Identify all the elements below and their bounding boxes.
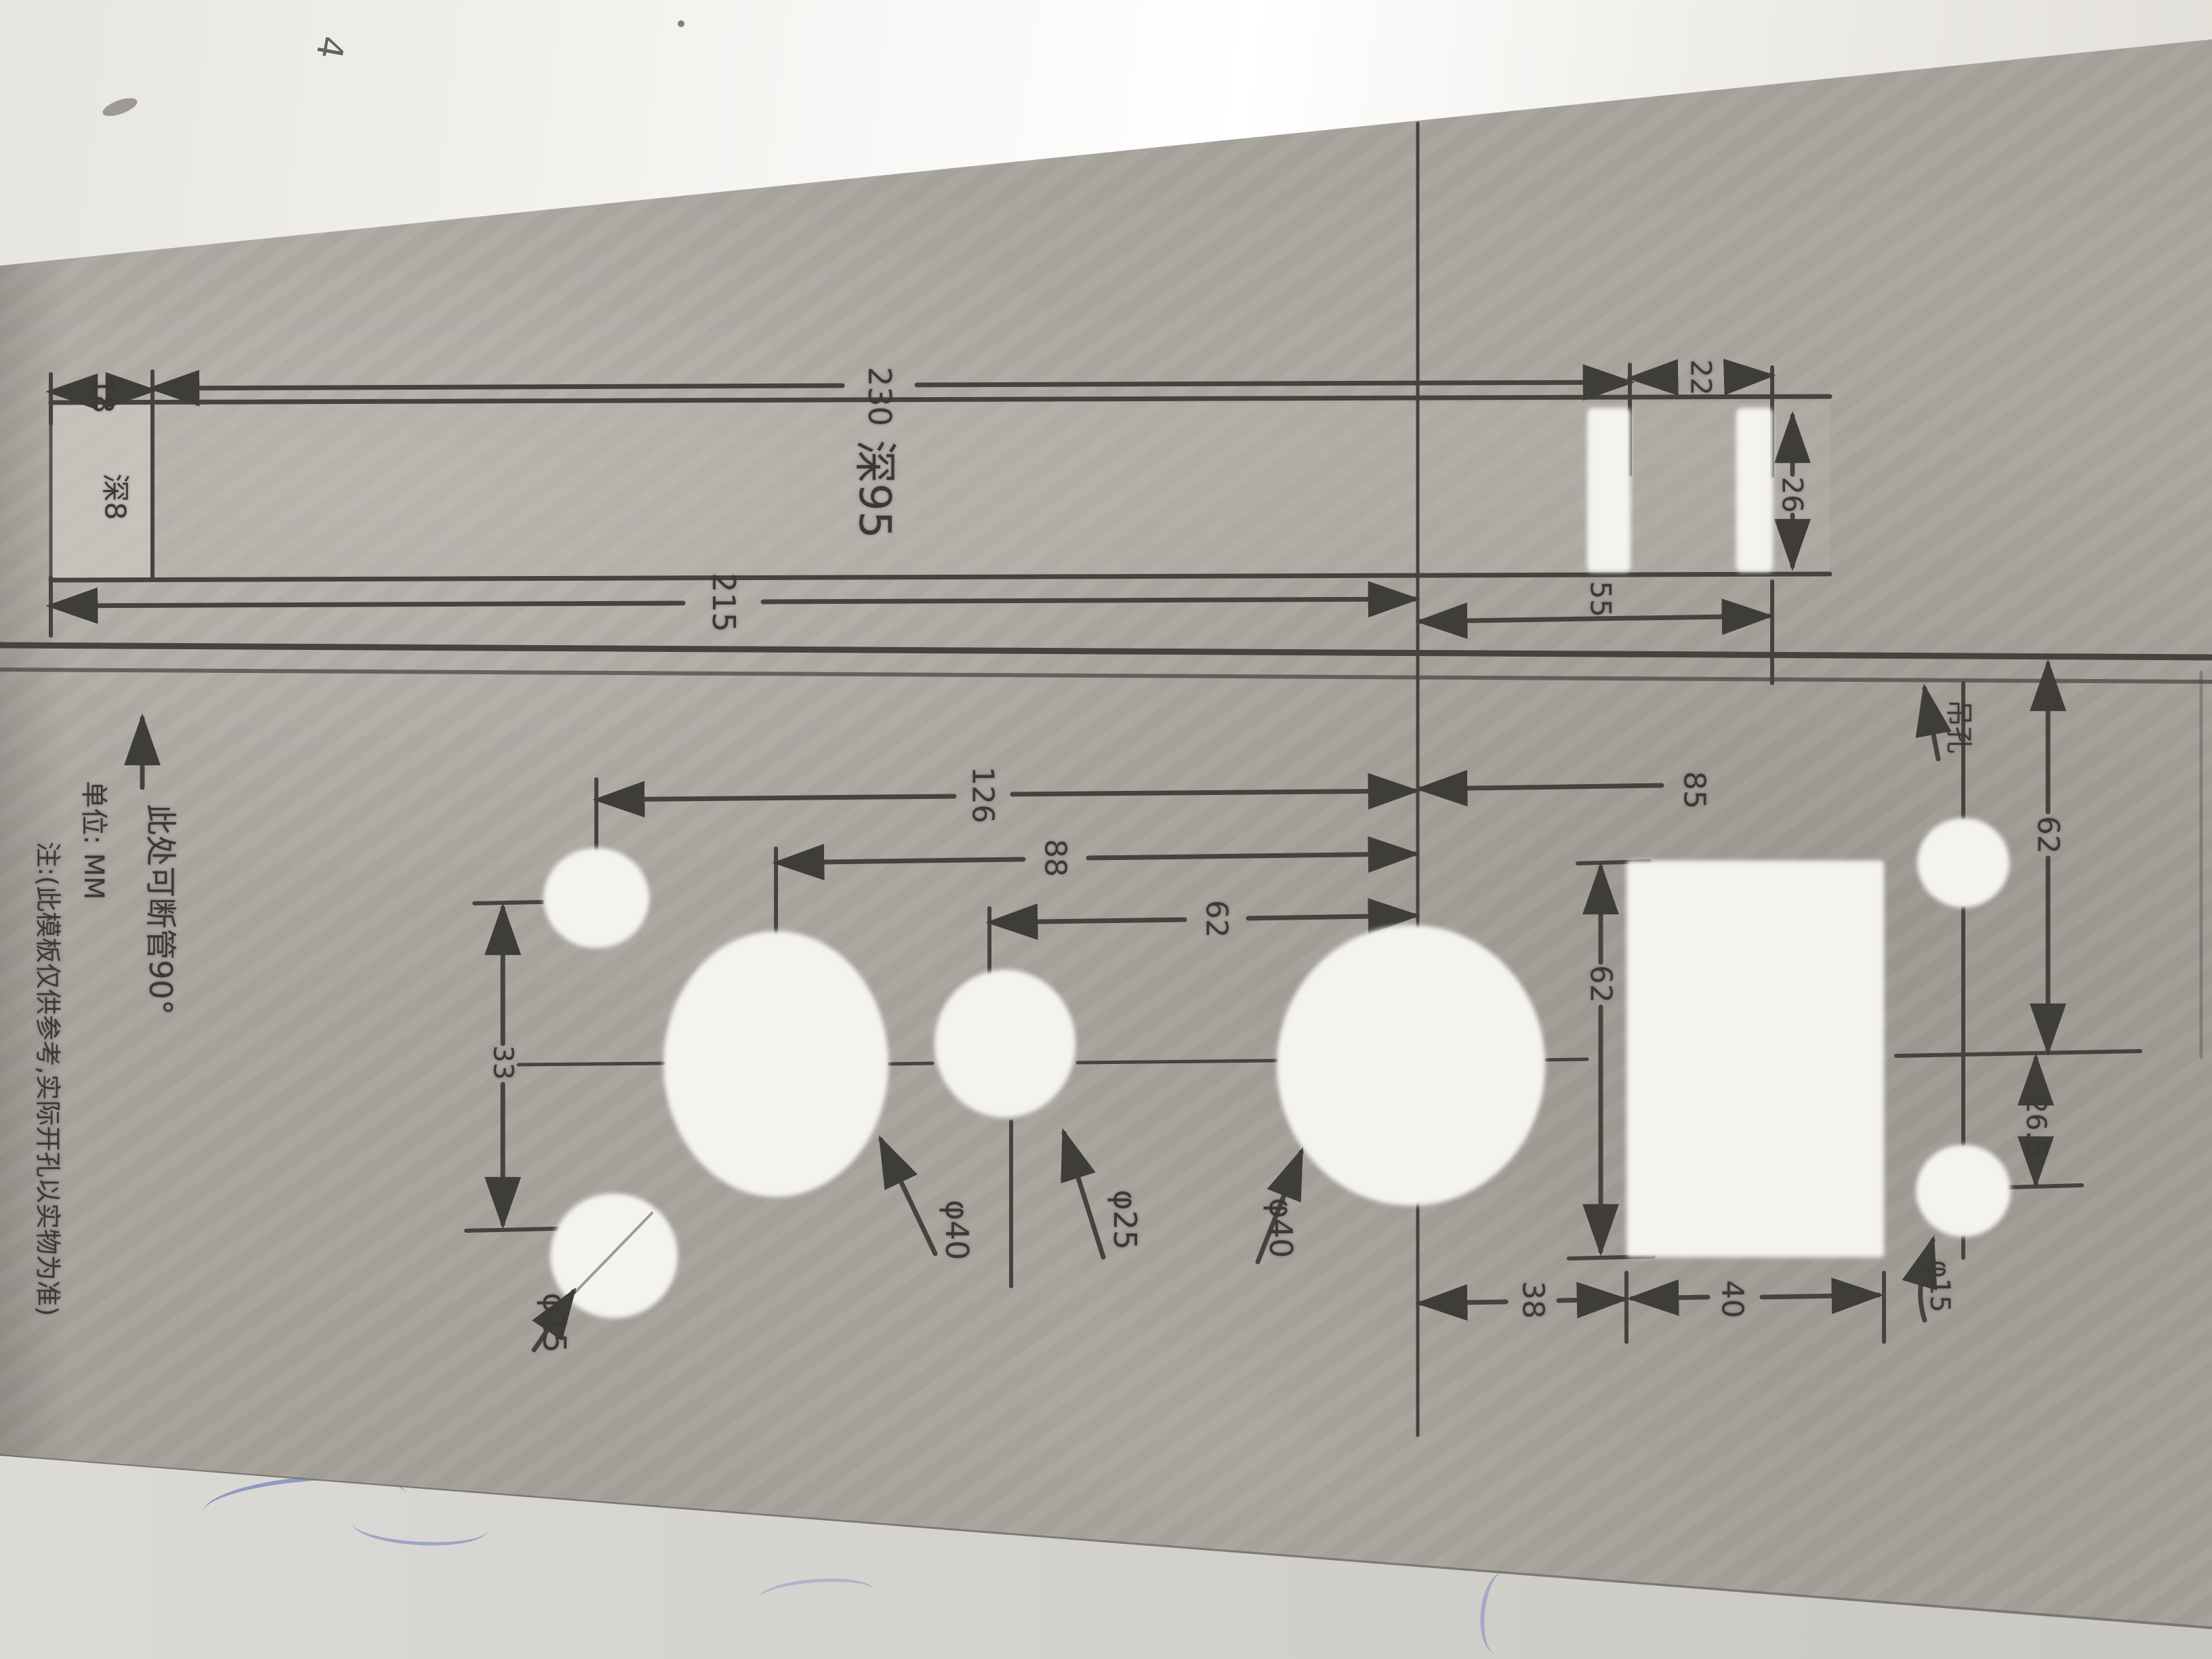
- hole-phi40-left-label: φ40: [939, 1200, 975, 1261]
- pencil-mark: 4: [308, 33, 352, 62]
- band-region: [51, 403, 1830, 577]
- band-slot-left: [1587, 408, 1631, 572]
- right-horizontal-line: [1896, 1051, 2140, 1056]
- dim-40-line: [1632, 1295, 1879, 1298]
- disclaimer-note: 注:(此模板仅供参考,实际开孔以实物为准): [32, 842, 69, 1317]
- direction-note: 此处可断管90°: [140, 804, 185, 1015]
- dim-85-label: 85: [1677, 771, 1712, 809]
- leader-phi40-left: [881, 1140, 935, 1254]
- linework-svg: [0, 0, 2212, 1659]
- hang-hole-label: 吊孔: [1942, 699, 1981, 754]
- hole-left-small-top: [544, 848, 649, 948]
- leader-phi25: [1064, 1133, 1103, 1257]
- hole-right-small-bottom-phi15: [1916, 1145, 2011, 1237]
- rect-cutout: [1626, 861, 1884, 1257]
- hole-right-small-top: [1917, 818, 2009, 907]
- dim-40-label: 40: [1715, 1280, 1750, 1318]
- leader-hang-hole: [1925, 689, 1938, 759]
- hole-phi15-right-label: φ15: [1924, 1260, 1955, 1312]
- band-depth-label: 深95: [847, 440, 909, 538]
- fold-line-lower: [0, 670, 2212, 682]
- dim-62-mid-label: 62: [1200, 900, 1234, 938]
- hole-phi40-right-label: φ40: [1263, 1198, 1299, 1258]
- dim-88-label: 88: [1038, 839, 1073, 877]
- dim-126-line: [598, 791, 1415, 800]
- paper-speck: [678, 20, 684, 27]
- dim-18-label: 18: [87, 377, 120, 413]
- dim-38-label: 38: [1516, 1281, 1551, 1319]
- band-top-edge: [51, 396, 1830, 403]
- hole-middle-phi25: [935, 970, 1076, 1118]
- dim-62-rect-label: 62: [1584, 965, 1618, 1003]
- pen-scribble-4: [758, 1575, 876, 1614]
- pencil-smudge: [100, 94, 140, 119]
- dim-126-label: 126: [966, 766, 1000, 823]
- band-slot-right: [1736, 408, 1773, 572]
- hole-phi15-left-label: φ15: [536, 1293, 573, 1353]
- dim-33-label: 33: [487, 1046, 518, 1080]
- hole-phi25-label: φ25: [1107, 1190, 1143, 1250]
- pen-scribble-3: [1477, 1570, 1523, 1655]
- dim-55-label: 55: [1584, 581, 1618, 617]
- dim-26-label: 26: [1776, 476, 1809, 512]
- dim-62-right-label: 62: [2031, 816, 2066, 854]
- band-cap-depth-label: 深8: [97, 474, 138, 520]
- dim-88-line: [777, 854, 1415, 863]
- hole-left-big-phi40: [663, 931, 888, 1197]
- unit-note: 单位: MM: [77, 781, 116, 899]
- dim-215-label: 215: [705, 573, 742, 632]
- dim-26-5-label: 26.5: [2020, 1096, 2051, 1156]
- dim-85-line: [1420, 785, 1662, 789]
- pen-scribble-2: [352, 1504, 489, 1549]
- dim-22-label: 22: [1685, 359, 1718, 395]
- fold-line-upper: [0, 645, 2212, 657]
- hole-right-big-phi40: [1277, 925, 1545, 1206]
- template-photo: 4 18 230 22 26 55 215 深95 深8 126 88 62 8…: [0, 0, 2212, 1659]
- dim-230-label: 230: [861, 367, 898, 426]
